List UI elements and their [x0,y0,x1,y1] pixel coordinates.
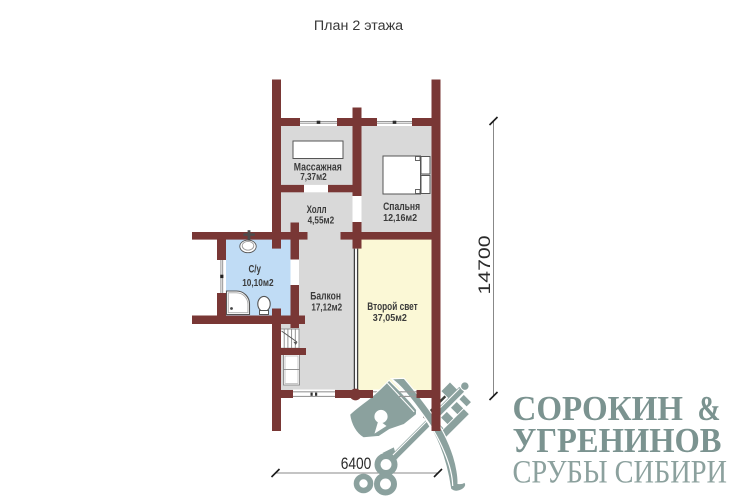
svg-text:6400: 6400 [341,454,372,473]
svg-text:10,10м2: 10,10м2 [242,277,274,289]
svg-text:17,12м2: 17,12м2 [311,301,342,313]
svg-text:4,55м2: 4,55м2 [308,214,335,226]
svg-text:14700: 14700 [475,236,494,295]
svg-text:С/у: С/у [249,264,262,276]
svg-text:37,05м2: 37,05м2 [373,312,407,324]
svg-text:План 2 этажа: План 2 этажа [314,18,403,34]
svg-text:СРУБЫ СИБИРИ: СРУБЫ СИБИРИ [513,454,728,490]
svg-text:12,16м2: 12,16м2 [383,212,417,224]
svg-text:7,37м2: 7,37м2 [300,171,327,183]
